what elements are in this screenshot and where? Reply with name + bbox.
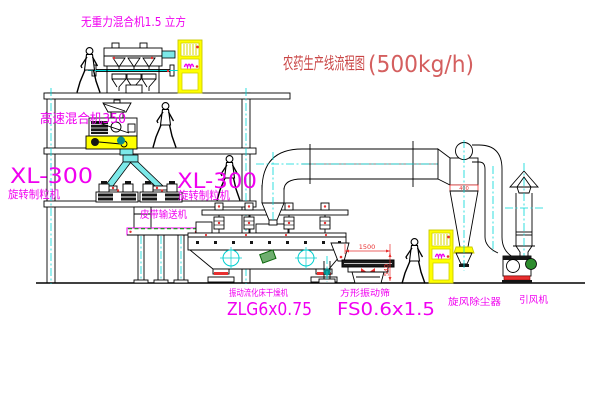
label-sieve-name: 方形振动筛 — [340, 287, 390, 299]
label-dryer-name: 振动流化床干燥机 — [229, 287, 288, 299]
dim-540: 540 — [383, 264, 391, 276]
label-gravity-mixer: 无重力混合机1.5 立方 — [81, 14, 186, 29]
title-text: 农药生产线流程图 — [283, 54, 365, 73]
title-capacity: (500kg/h) — [368, 52, 474, 78]
label-fan: 引风机 — [519, 294, 548, 306]
conveyor-leg — [134, 235, 148, 283]
label-granulator-right-name: 旋转制粒机 — [178, 188, 230, 202]
dryer-spring-hanger — [320, 203, 330, 233]
label-granulator-left-name: 旋转制粒机 — [8, 187, 60, 201]
cad-flow-diagram: 400 — [0, 0, 600, 403]
label-dryer-model: ZLG6x0.75 — [227, 299, 312, 320]
dryer-spring-hanger — [284, 203, 294, 233]
y-splitter-duct — [103, 155, 167, 190]
conveyor-leg — [174, 235, 188, 283]
dryer-spring-hanger — [244, 203, 254, 233]
label-belt-conveyor: 皮带输送机 — [140, 208, 187, 221]
diagram-svg: 400 — [0, 0, 600, 403]
gravity-free-mixer — [88, 43, 178, 93]
dim-1500: 1500 — [359, 243, 376, 251]
drawing-title: 农药生产线流程图 (500kg/h) — [283, 52, 474, 78]
person-icon — [153, 103, 176, 148]
person-icon — [402, 239, 425, 284]
label-sieve-model: FS0.6x1.5 — [337, 299, 435, 320]
cyclone-to-fan-duct — [472, 145, 517, 259]
high-speed-mixer — [86, 100, 137, 155]
control-cabinet-top — [178, 40, 202, 93]
induced-draft-fan — [502, 256, 537, 283]
conveyor-leg — [154, 235, 168, 283]
label-granulator-left-model: XL-300 — [10, 164, 93, 188]
granulator-left — [96, 181, 138, 202]
dryer-spring-hanger — [214, 203, 224, 233]
control-cabinet-ground — [429, 230, 453, 283]
label-cyclone: 旋风除尘器 — [448, 296, 502, 308]
label-high-speed-mixer: 高速混合机350 — [40, 111, 126, 127]
